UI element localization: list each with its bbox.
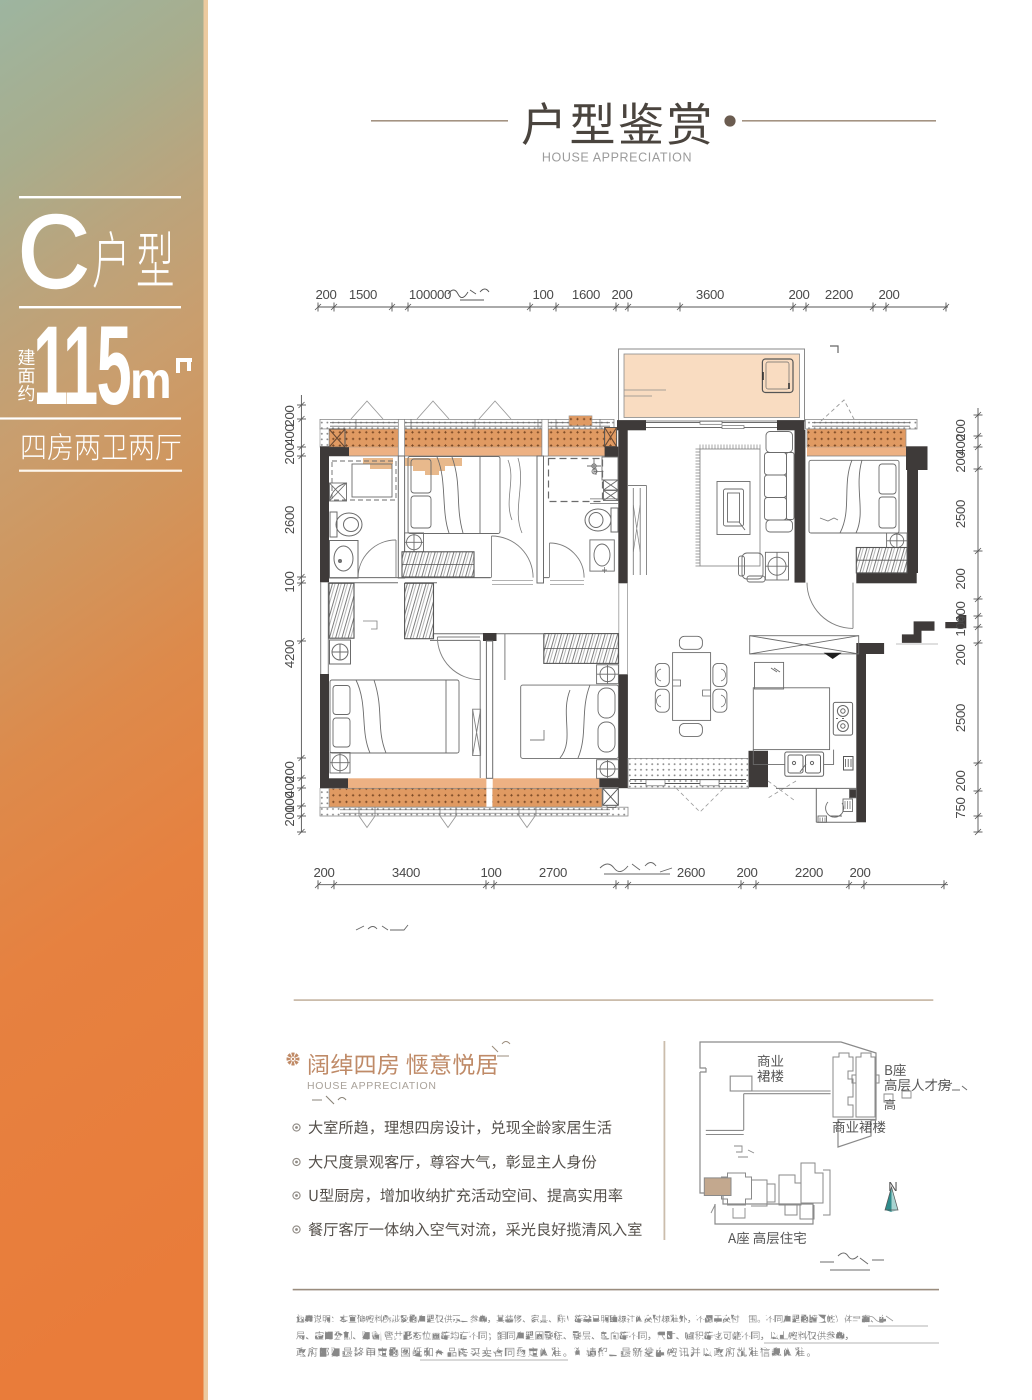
svg-text:2700: 2700 — [539, 865, 567, 880]
svg-text:2600: 2600 — [282, 506, 297, 534]
svg-text:200: 200 — [313, 865, 334, 880]
svg-text:HOUSE APPRECIATION: HOUSE APPRECIATION — [542, 151, 692, 165]
svg-text:200: 200 — [736, 865, 757, 880]
svg-text:200: 200 — [953, 644, 968, 665]
svg-text:3600: 3600 — [696, 287, 724, 302]
svg-text:1600: 1600 — [572, 287, 600, 302]
svg-text:3400: 3400 — [392, 865, 420, 880]
svg-text:115: 115 — [33, 304, 131, 428]
svg-text:100: 100 — [532, 287, 553, 302]
svg-text:200: 200 — [953, 770, 968, 791]
svg-text:2600: 2600 — [677, 865, 705, 880]
svg-text:200: 200 — [315, 287, 336, 302]
svg-text:200: 200 — [788, 287, 809, 302]
svg-text:200: 200 — [953, 568, 968, 589]
svg-text:C: C — [18, 195, 89, 309]
svg-text:2500: 2500 — [953, 500, 968, 528]
svg-text:2200: 2200 — [825, 287, 853, 302]
svg-text:m: m — [130, 352, 172, 410]
svg-text:200: 200 — [282, 805, 297, 826]
svg-text:2500: 2500 — [953, 704, 968, 732]
svg-text:200: 200 — [611, 287, 632, 302]
svg-text:200: 200 — [282, 405, 297, 426]
svg-text:100: 100 — [953, 615, 968, 636]
svg-text:200: 200 — [849, 865, 870, 880]
svg-text:200: 200 — [878, 287, 899, 302]
svg-text:200: 200 — [282, 443, 297, 464]
svg-text:4200: 4200 — [282, 640, 297, 668]
svg-text:HOUSE APPRECIATION: HOUSE APPRECIATION — [307, 1080, 437, 1092]
svg-text:200: 200 — [953, 451, 968, 472]
svg-text:1500: 1500 — [349, 287, 377, 302]
svg-text:100: 100 — [282, 571, 297, 592]
svg-text:2200: 2200 — [795, 865, 823, 880]
svg-text:400: 400 — [282, 424, 297, 445]
svg-text:100000: 100000 — [409, 287, 451, 302]
svg-text:100: 100 — [480, 865, 501, 880]
svg-text:750: 750 — [953, 797, 968, 818]
